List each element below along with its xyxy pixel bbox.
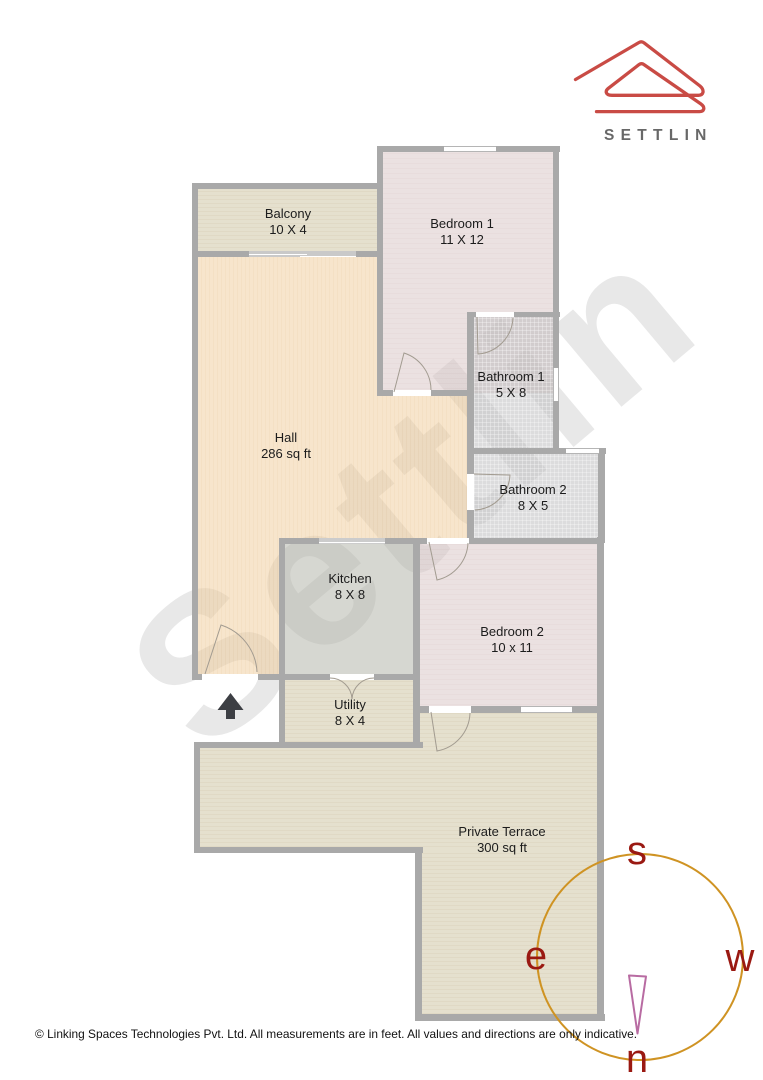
- svg-text:s: s: [627, 829, 647, 873]
- svg-text:n: n: [626, 1037, 648, 1080]
- svg-text:e: e: [525, 934, 547, 978]
- svg-text:w: w: [725, 936, 755, 980]
- svg-text:SETTLIN: SETTLIN: [604, 127, 713, 144]
